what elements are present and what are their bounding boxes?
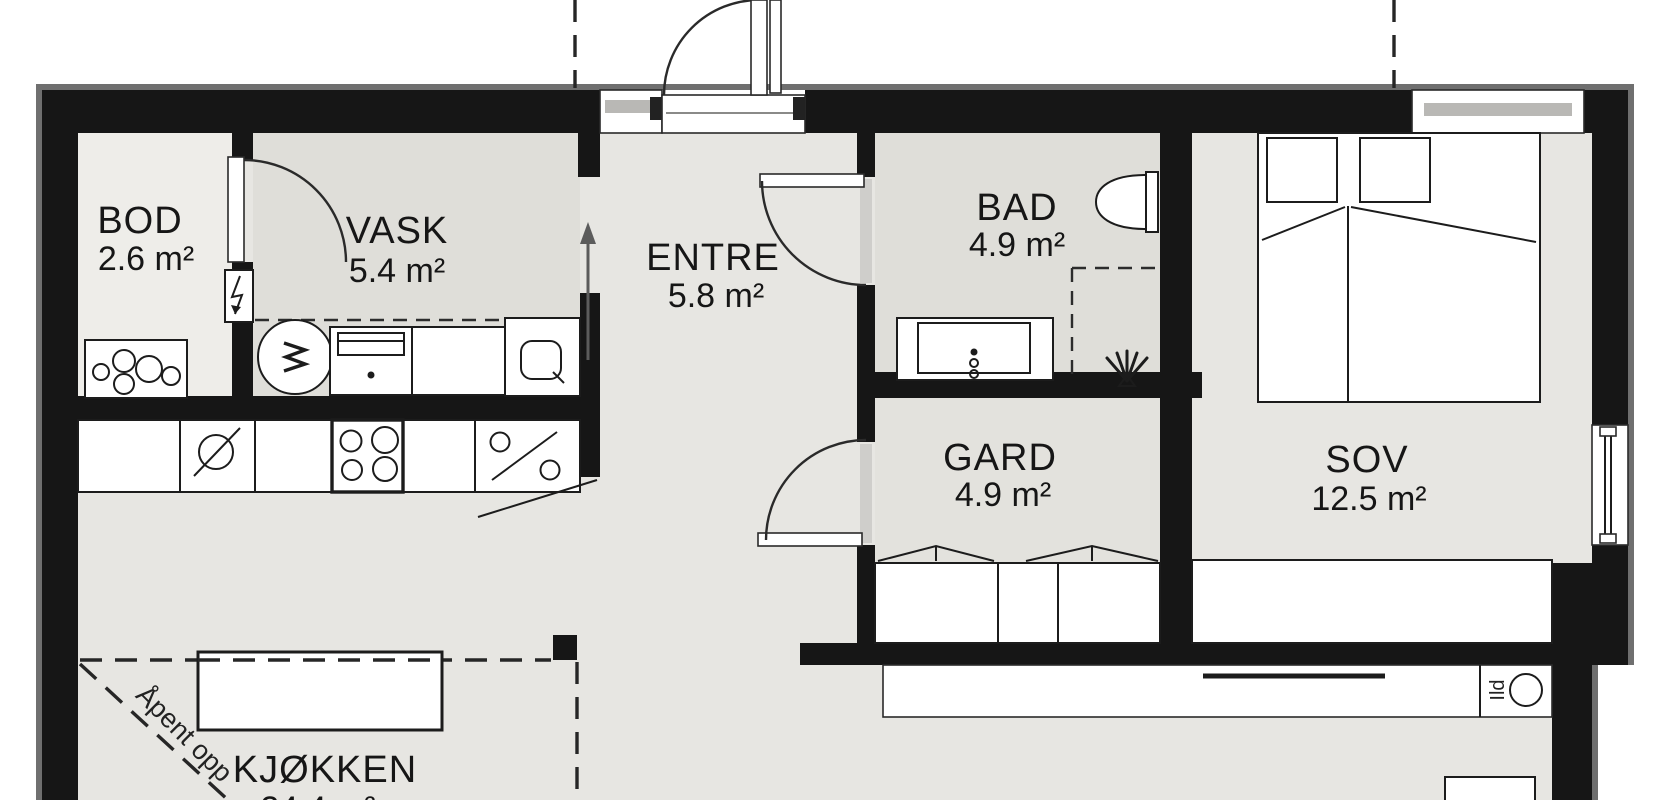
room-area: 2.6 m² <box>98 240 194 278</box>
room-name: BOD <box>97 200 182 242</box>
tall-cabinet-icon <box>505 318 580 396</box>
room-area: 5.8 m² <box>668 277 764 315</box>
entrance-door-leaf <box>751 0 767 95</box>
window-top-right <box>1412 90 1584 133</box>
pillow <box>1360 138 1430 202</box>
laundry-sink-icon <box>330 327 412 395</box>
room-label-bad: BAD 4.9 m² <box>969 187 1065 264</box>
room-name: VASK <box>346 210 449 252</box>
room-label-bod: BOD 2.6 m² <box>97 200 194 278</box>
room-name: ENTRE <box>646 237 780 279</box>
floor-plan-page: Ild BOD 2.6 m² VASK 5.4 m² ENTRE 5.8 m² … <box>0 0 1670 800</box>
kitchen-island <box>198 652 442 730</box>
room-name: SOV <box>1325 439 1408 481</box>
washing-machine-icon <box>258 320 332 394</box>
window-top-left <box>600 90 662 133</box>
room-area: 24.4 m² <box>260 790 375 800</box>
room-label-gard: GARD 4.9 m² <box>943 437 1057 514</box>
room-name: KJØKKEN <box>233 749 417 791</box>
room-area: 4.9 m² <box>969 226 1065 264</box>
room-area: 12.5 m² <box>1311 480 1426 518</box>
door-leaf <box>760 174 864 187</box>
pillow <box>1267 138 1337 202</box>
furniture-bottom-right <box>1445 777 1535 800</box>
fireplace-label: Ild <box>1487 679 1509 700</box>
door-leaf <box>228 157 244 262</box>
counter-vask <box>412 327 505 395</box>
wardrobe-sov <box>1192 560 1552 643</box>
door-leaf <box>758 533 862 546</box>
water-heater-icon <box>85 340 187 398</box>
room-area: 5.4 m² <box>349 252 445 290</box>
double-bed-icon <box>1258 133 1540 402</box>
floor-plan-canvas: Ild BOD 2.6 m² VASK 5.4 m² ENTRE 5.8 m² … <box>0 0 1670 800</box>
sideboard: Ild <box>883 665 1552 717</box>
fuse-box-icon <box>225 270 253 322</box>
window-right <box>1592 425 1628 545</box>
room-name: GARD <box>943 437 1057 479</box>
room-name: BAD <box>976 187 1057 229</box>
room-label-vask: VASK 5.4 m² <box>346 210 449 290</box>
entrance-door <box>662 0 805 133</box>
vanity-sink-icon <box>897 318 1053 380</box>
room-area: 4.9 m² <box>955 476 1051 514</box>
